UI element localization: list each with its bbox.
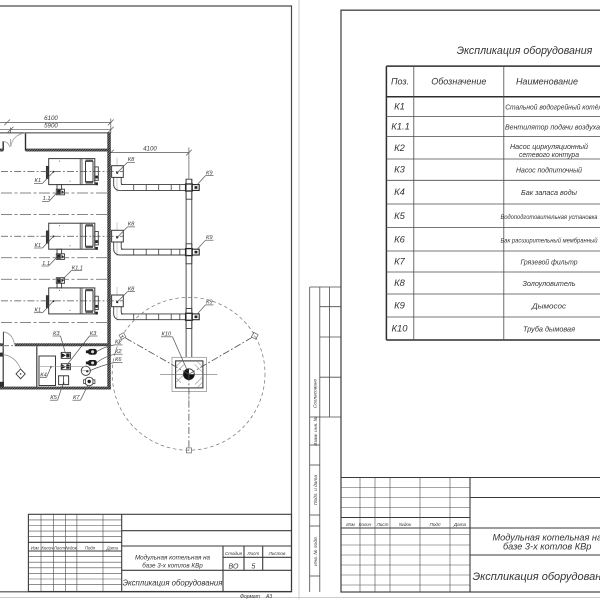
svg-text:Экспликация оборудования: Экспликация оборудования	[123, 579, 224, 588]
svg-text:К1: К1	[35, 243, 42, 249]
svg-text:К9: К9	[206, 170, 213, 176]
svg-text:К5: К5	[50, 395, 57, 401]
svg-text:1.1: 1.1	[42, 261, 50, 267]
svg-text:Насос подпиточный: Насос подпиточный	[516, 166, 582, 175]
svg-text:К1.1: К1.1	[391, 121, 410, 132]
svg-text:К1.1: К1.1	[72, 265, 83, 271]
svg-text:Изм: Изм	[346, 522, 355, 527]
svg-text:базе 3-х котлов КВр: базе 3-х котлов КВр	[503, 542, 591, 552]
svg-text:Наименование: Наименование	[516, 77, 578, 87]
svg-text:К1: К1	[35, 178, 42, 184]
svg-text:6100: 6100	[44, 115, 58, 122]
svg-text:Бак расширительный мембранный: Бак расширительный мембранный	[501, 236, 598, 244]
svg-text:Подп: Подп	[430, 522, 441, 527]
svg-text:К8: К8	[128, 286, 135, 292]
svg-text:Стадия: Стадия	[225, 551, 243, 556]
svg-text:К8: К8	[128, 222, 135, 228]
svg-text:Подп. и дата: Подп. и дата	[313, 475, 319, 505]
svg-text:К4: К4	[40, 372, 47, 378]
svg-text:Лист: Лист	[246, 551, 259, 556]
svg-text:Согласовано: Согласовано	[313, 379, 319, 409]
svg-text:К3: К3	[53, 331, 60, 337]
svg-text:Взам. инв. №: Взам. инв. №	[313, 416, 319, 446]
svg-text:Модульная котельная на: Модульная котельная на	[135, 554, 211, 562]
svg-text:К3: К3	[90, 331, 97, 337]
svg-text:Инв. № подл.: Инв. № подл.	[313, 536, 319, 566]
svg-text:К10: К10	[162, 332, 173, 338]
svg-text:К4: К4	[394, 186, 405, 197]
svg-text:Подп: Подп	[85, 545, 96, 550]
svg-text:Экспликация оборудования: Экспликация оборудования	[457, 45, 593, 57]
svg-text:К5: К5	[394, 210, 406, 221]
svg-text:Экспликация оборудования: Экспликация оборудования	[473, 571, 600, 583]
svg-text:сетевого контура: сетевого контура	[519, 150, 579, 159]
svg-text:Водоподготовительная установка: Водоподготовительная установка	[501, 213, 598, 221]
svg-text:Лист: Лист	[53, 545, 65, 550]
svg-text:Дымосос: Дымосос	[531, 302, 566, 311]
svg-text:Колич: Колич	[41, 545, 54, 550]
svg-text:К6: К6	[115, 357, 122, 363]
svg-text:Стальной водогрейный котёл: Стальной водогрейный котёл	[505, 103, 600, 112]
svg-text:К8: К8	[394, 277, 406, 288]
svg-text:№док: №док	[399, 522, 412, 527]
svg-text:ВО: ВО	[229, 563, 240, 570]
svg-text:Формат: Формат	[240, 594, 260, 600]
svg-text:5: 5	[251, 563, 255, 570]
svg-text:Дата: Дата	[106, 545, 119, 550]
svg-text:К6: К6	[394, 233, 406, 244]
svg-text:Изм: Изм	[31, 545, 39, 550]
svg-text:1.1: 1.1	[43, 196, 51, 202]
svg-text:К7: К7	[394, 256, 406, 267]
svg-text:К1: К1	[394, 101, 405, 112]
svg-text:А3: А3	[265, 594, 272, 600]
svg-text:К1: К1	[35, 308, 42, 314]
svg-text:К7: К7	[73, 395, 80, 401]
svg-text:5900: 5900	[44, 123, 58, 130]
svg-text:Обозначение: Обозначение	[431, 77, 486, 87]
svg-text:Колич: Колич	[359, 522, 372, 527]
svg-text:Лист: Лист	[376, 522, 389, 527]
svg-text:базе 3-х котлов КВр: базе 3-х котлов КВр	[142, 562, 203, 570]
svg-text:Бак запаса воды: Бак запаса воды	[521, 188, 578, 197]
svg-text:К8: К8	[128, 157, 135, 163]
svg-text:К3: К3	[394, 164, 406, 175]
svg-text:К2: К2	[115, 349, 122, 355]
svg-text:К9: К9	[394, 300, 406, 311]
svg-text:Золоуловитель: Золоуловитель	[523, 279, 576, 288]
svg-text:4100: 4100	[143, 145, 157, 152]
svg-text:Поз.: Поз.	[391, 77, 409, 87]
svg-text:№док: №док	[65, 545, 77, 550]
svg-text:Труба дымовая: Труба дымовая	[523, 325, 575, 334]
svg-text:К9: К9	[206, 235, 213, 241]
svg-text:Дата: Дата	[453, 522, 467, 527]
svg-text:Грязевой фильтр: Грязевой фильтр	[521, 258, 578, 267]
svg-text:Вентилятор подачи воздуха: Вентилятор подачи воздуха	[505, 123, 600, 132]
svg-text:К2: К2	[115, 340, 122, 346]
svg-text:К10: К10	[392, 323, 409, 334]
svg-text:К2: К2	[394, 142, 406, 153]
svg-text:Листов: Листов	[268, 551, 286, 556]
